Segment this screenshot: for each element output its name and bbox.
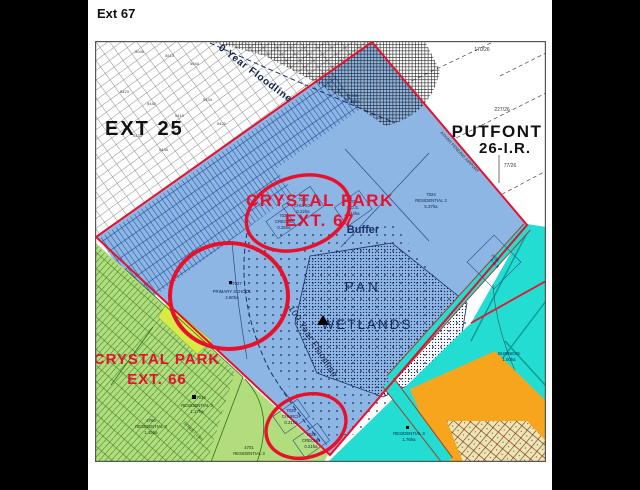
- label-putfont-1: PUTFONT: [452, 122, 543, 141]
- label-crystal-park-67-line1: CRYSTAL PARK: [246, 191, 394, 210]
- building-icon: [406, 426, 409, 429]
- parcel-use: RESIDENTIAL 3: [233, 451, 265, 456]
- stand-number: 5045: [135, 49, 145, 54]
- stand-number: 5644: [190, 61, 200, 66]
- stand-number: 5438: [159, 147, 169, 152]
- parcel-area: 2.45ha: [346, 99, 360, 104]
- parcel-area: 5.37ha: [424, 204, 438, 209]
- beige-lots-grid: [447, 421, 546, 462]
- parcel-use: BUSINESS: [498, 351, 520, 356]
- parcel-use: P.O.S.: [347, 93, 359, 98]
- parcel-use: RESIDENTIAL 3: [181, 403, 213, 408]
- label-crystal-park-67-line2: EXT. 67: [285, 211, 355, 230]
- parcel-num: 7016: [196, 395, 206, 400]
- parcel-area: 1.76ha: [402, 437, 416, 442]
- stand-number: 5419: [175, 113, 185, 118]
- parcel-use: RESIDENTIAL 3: [393, 431, 425, 436]
- label-crystal-park-66-line2: EXT. 66: [127, 371, 187, 388]
- label-putfont-parcel-2: 227/26: [494, 107, 510, 113]
- page-title: Ext 67: [97, 6, 135, 21]
- parcel-area: 1.00ha: [502, 357, 516, 362]
- label-ext25: EXT 25: [105, 118, 184, 140]
- parcel-num: 7025: [286, 408, 296, 413]
- label-putfont-parcel-1: 170/26: [474, 47, 490, 53]
- label-crystal-park-66-line1: CRYSTAL PARK: [95, 351, 220, 368]
- parcel-area: 1.17ha: [190, 409, 204, 414]
- parcel-area: 2.80ha: [225, 295, 239, 300]
- parcel-area: 0.21ha: [304, 444, 318, 449]
- parcel-num: 4766: [146, 418, 156, 423]
- parcel-use: RESIDENTIAL 3: [135, 424, 167, 429]
- parcel-num: 7024: [426, 192, 436, 197]
- stand-number: 5422: [217, 121, 227, 126]
- parcel-use: RESIDENTIAL 3: [415, 198, 447, 203]
- parcel-area: 1.15ha: [144, 430, 158, 435]
- parcel-area: 0.21ha: [284, 420, 298, 425]
- map-container: EXT 25 PUTFONT 26-I.R. 170/26 227/26 77/…: [95, 41, 546, 462]
- parcel-num: 7027: [232, 281, 242, 286]
- label-putfont-parcel-3: 77/26: [504, 163, 517, 169]
- parcel-label-pos-top: P.O.S. 2.45ha: [346, 93, 360, 104]
- site-map: EXT 25 PUTFONT 26-I.R. 170/26 227/26 77/…: [95, 41, 546, 462]
- parcel-num: 4701: [244, 445, 254, 450]
- stand-number: 5423: [120, 89, 130, 94]
- stand-number: 5440: [147, 101, 157, 106]
- screenshot-root: { "title": "Ext 67", "regions": { "ext25…: [0, 0, 640, 490]
- label-putfont-2: 26-I.R.: [479, 140, 531, 157]
- stand-number: 5434: [203, 97, 213, 102]
- label-wetlands: WETLANDS: [321, 317, 412, 332]
- stand-number: 5513: [165, 53, 175, 58]
- parcel-use: PRIMARY SCHOOL: [213, 289, 252, 294]
- parcel-num: 7023: [306, 432, 316, 437]
- parcel-use: CRECHE: [302, 438, 320, 443]
- label-pan: PAN: [345, 279, 381, 294]
- parcel-use: CHURCH: [282, 414, 301, 419]
- stand-number: 5433: [133, 133, 143, 138]
